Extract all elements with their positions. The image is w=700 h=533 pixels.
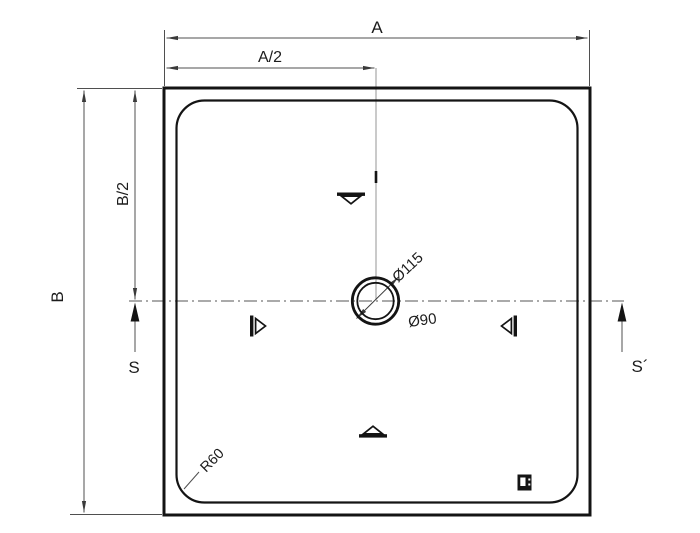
section-marker-s-prime <box>618 303 627 353</box>
technical-drawing-canvas: A A/2 B B/2 Ø115 Ø90 R60 S S´ <box>0 0 700 533</box>
label-dimension-b: B <box>48 291 67 302</box>
brand-mark <box>518 475 532 491</box>
label-section-s: S <box>128 358 139 377</box>
label-dimension-a-half: A/2 <box>258 49 282 66</box>
shower-tray-plan-drawing: A A/2 B B/2 Ø115 Ø90 R60 S S´ <box>0 0 700 533</box>
label-dimension-a: A <box>371 18 383 37</box>
label-section-s-prime: S´ <box>632 357 649 376</box>
tray-outer-edge <box>164 88 590 515</box>
label-dimension-b-half: B/2 <box>115 182 132 206</box>
section-marker-s <box>131 303 140 353</box>
